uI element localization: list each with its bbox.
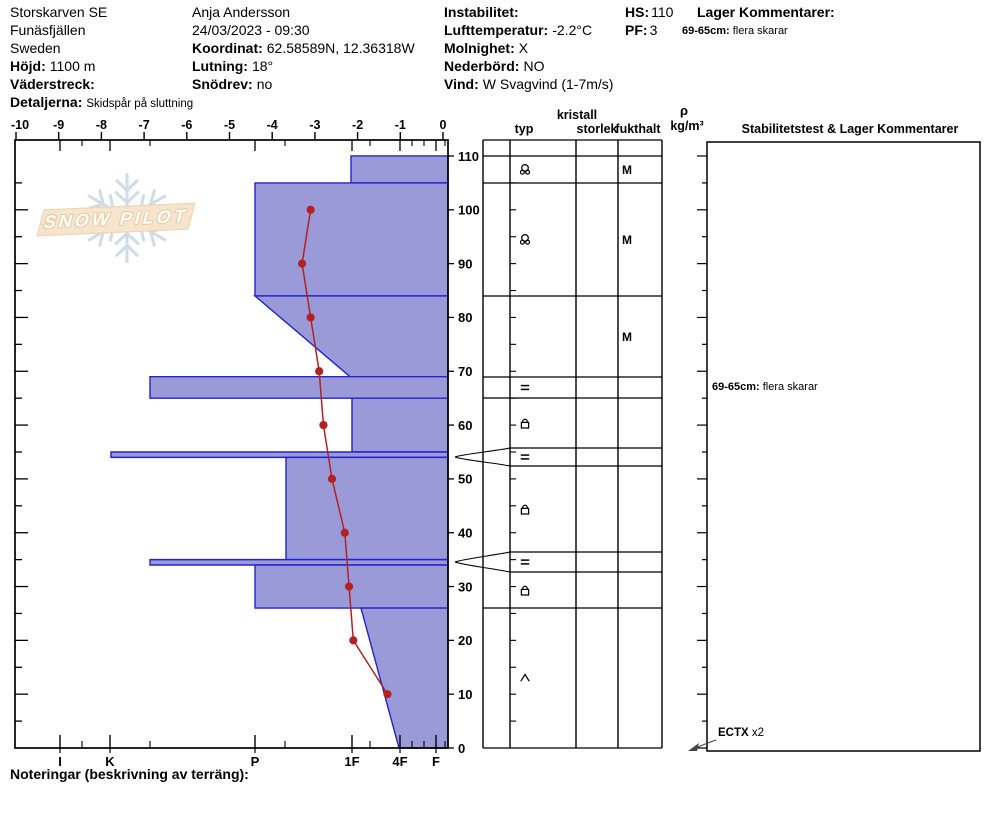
snow-layer [286,457,448,559]
column-header-kristall: kristall [557,108,597,122]
snow-layer [351,156,448,183]
column-header-fukthalt: fukthalt [615,122,660,136]
stability-test-result: ECTX x2 [718,727,764,739]
ectx-arrow-icon [696,740,716,748]
depth-label: 110 [458,149,479,164]
temp-axis-tick-label: -3 [309,118,320,132]
temperature-point [345,582,353,590]
moisture-value: M [622,330,632,344]
comments-panel-box [707,142,980,751]
snow-layer [111,452,448,457]
depth-label: 30 [458,579,472,594]
hardness-axis-label: 4F [392,754,407,769]
column-header-density-symbol: ρ [680,103,688,118]
column-header-density-unit: kg/m³ [670,119,703,133]
grain-symbol-rimed-precipitation [526,170,530,174]
moisture-value: M [622,233,632,247]
temp-axis-tick-label: -4 [267,118,278,132]
snow-layer [361,608,448,748]
grain-symbol-rimed-precipitation [526,240,530,244]
snow-layer [150,377,448,399]
grain-symbol-rounded-facets [521,589,528,595]
temperature-point [298,260,306,268]
temperature-point [315,367,323,375]
snow-layer [352,398,448,452]
snow-layer [255,183,448,296]
column-header-typ: typ [515,122,534,136]
grain-symbol-depth-hoar [521,674,529,681]
temperature-point [383,690,391,698]
temp-axis-tick-label: -6 [181,118,192,132]
moisture-value: M [622,163,632,177]
temp-axis-tick-label: -5 [224,118,235,132]
temperature-point [349,636,357,644]
depth-label: 100 [458,203,480,218]
column-header-stability: Stabilitetstest & Lager Kommentarer [742,122,959,136]
grain-symbol-rimed-precipitation [521,170,525,174]
grain-symbol-rounded-facets [521,508,528,514]
temp-axis-tick-label: -9 [53,118,64,132]
snow-layer [255,296,448,377]
depth-label: 0 [458,741,465,756]
depth-label: 40 [458,526,472,541]
temperature-point [307,206,315,214]
grain-symbol-rounded-facets [521,422,528,428]
temp-axis-tick-label: 0 [440,118,447,132]
ectx-arrow-icon [688,743,699,751]
temp-axis-tick-label: -1 [395,118,406,132]
grain-symbol-rimed-precipitation [521,240,525,244]
snow-layer [150,560,448,565]
temperature-point [328,475,336,483]
column-header-storlek: storlek [577,122,618,136]
depth-label: 10 [458,687,472,702]
hardness-axis-label: F [432,754,440,769]
depth-label: 90 [458,256,472,271]
depth-label: 50 [458,472,472,487]
temp-axis-tick-label: -8 [96,118,107,132]
temperature-point [307,313,315,321]
snowpilot-profile-page: { "title_block": { "col1": { "line1": "S… [0,0,994,840]
temperature-point [341,529,349,537]
hardness-axis-label: 1F [344,754,359,769]
temp-axis-tick-label: -2 [352,118,363,132]
layer-comment-entry: 69-65cm:flera skarar [712,381,818,393]
depth-label: 70 [458,364,472,379]
notes-heading: Noteringar (beskrivning av terräng): [10,766,249,782]
depth-label: 80 [458,310,472,325]
depth-label: 60 [458,418,472,433]
depth-label: 20 [458,633,472,648]
hardness-axis-label: P [251,754,260,769]
temperature-point [319,421,327,429]
temp-axis-tick-label: -10 [11,118,29,132]
temp-axis-tick-label: -7 [139,118,150,132]
